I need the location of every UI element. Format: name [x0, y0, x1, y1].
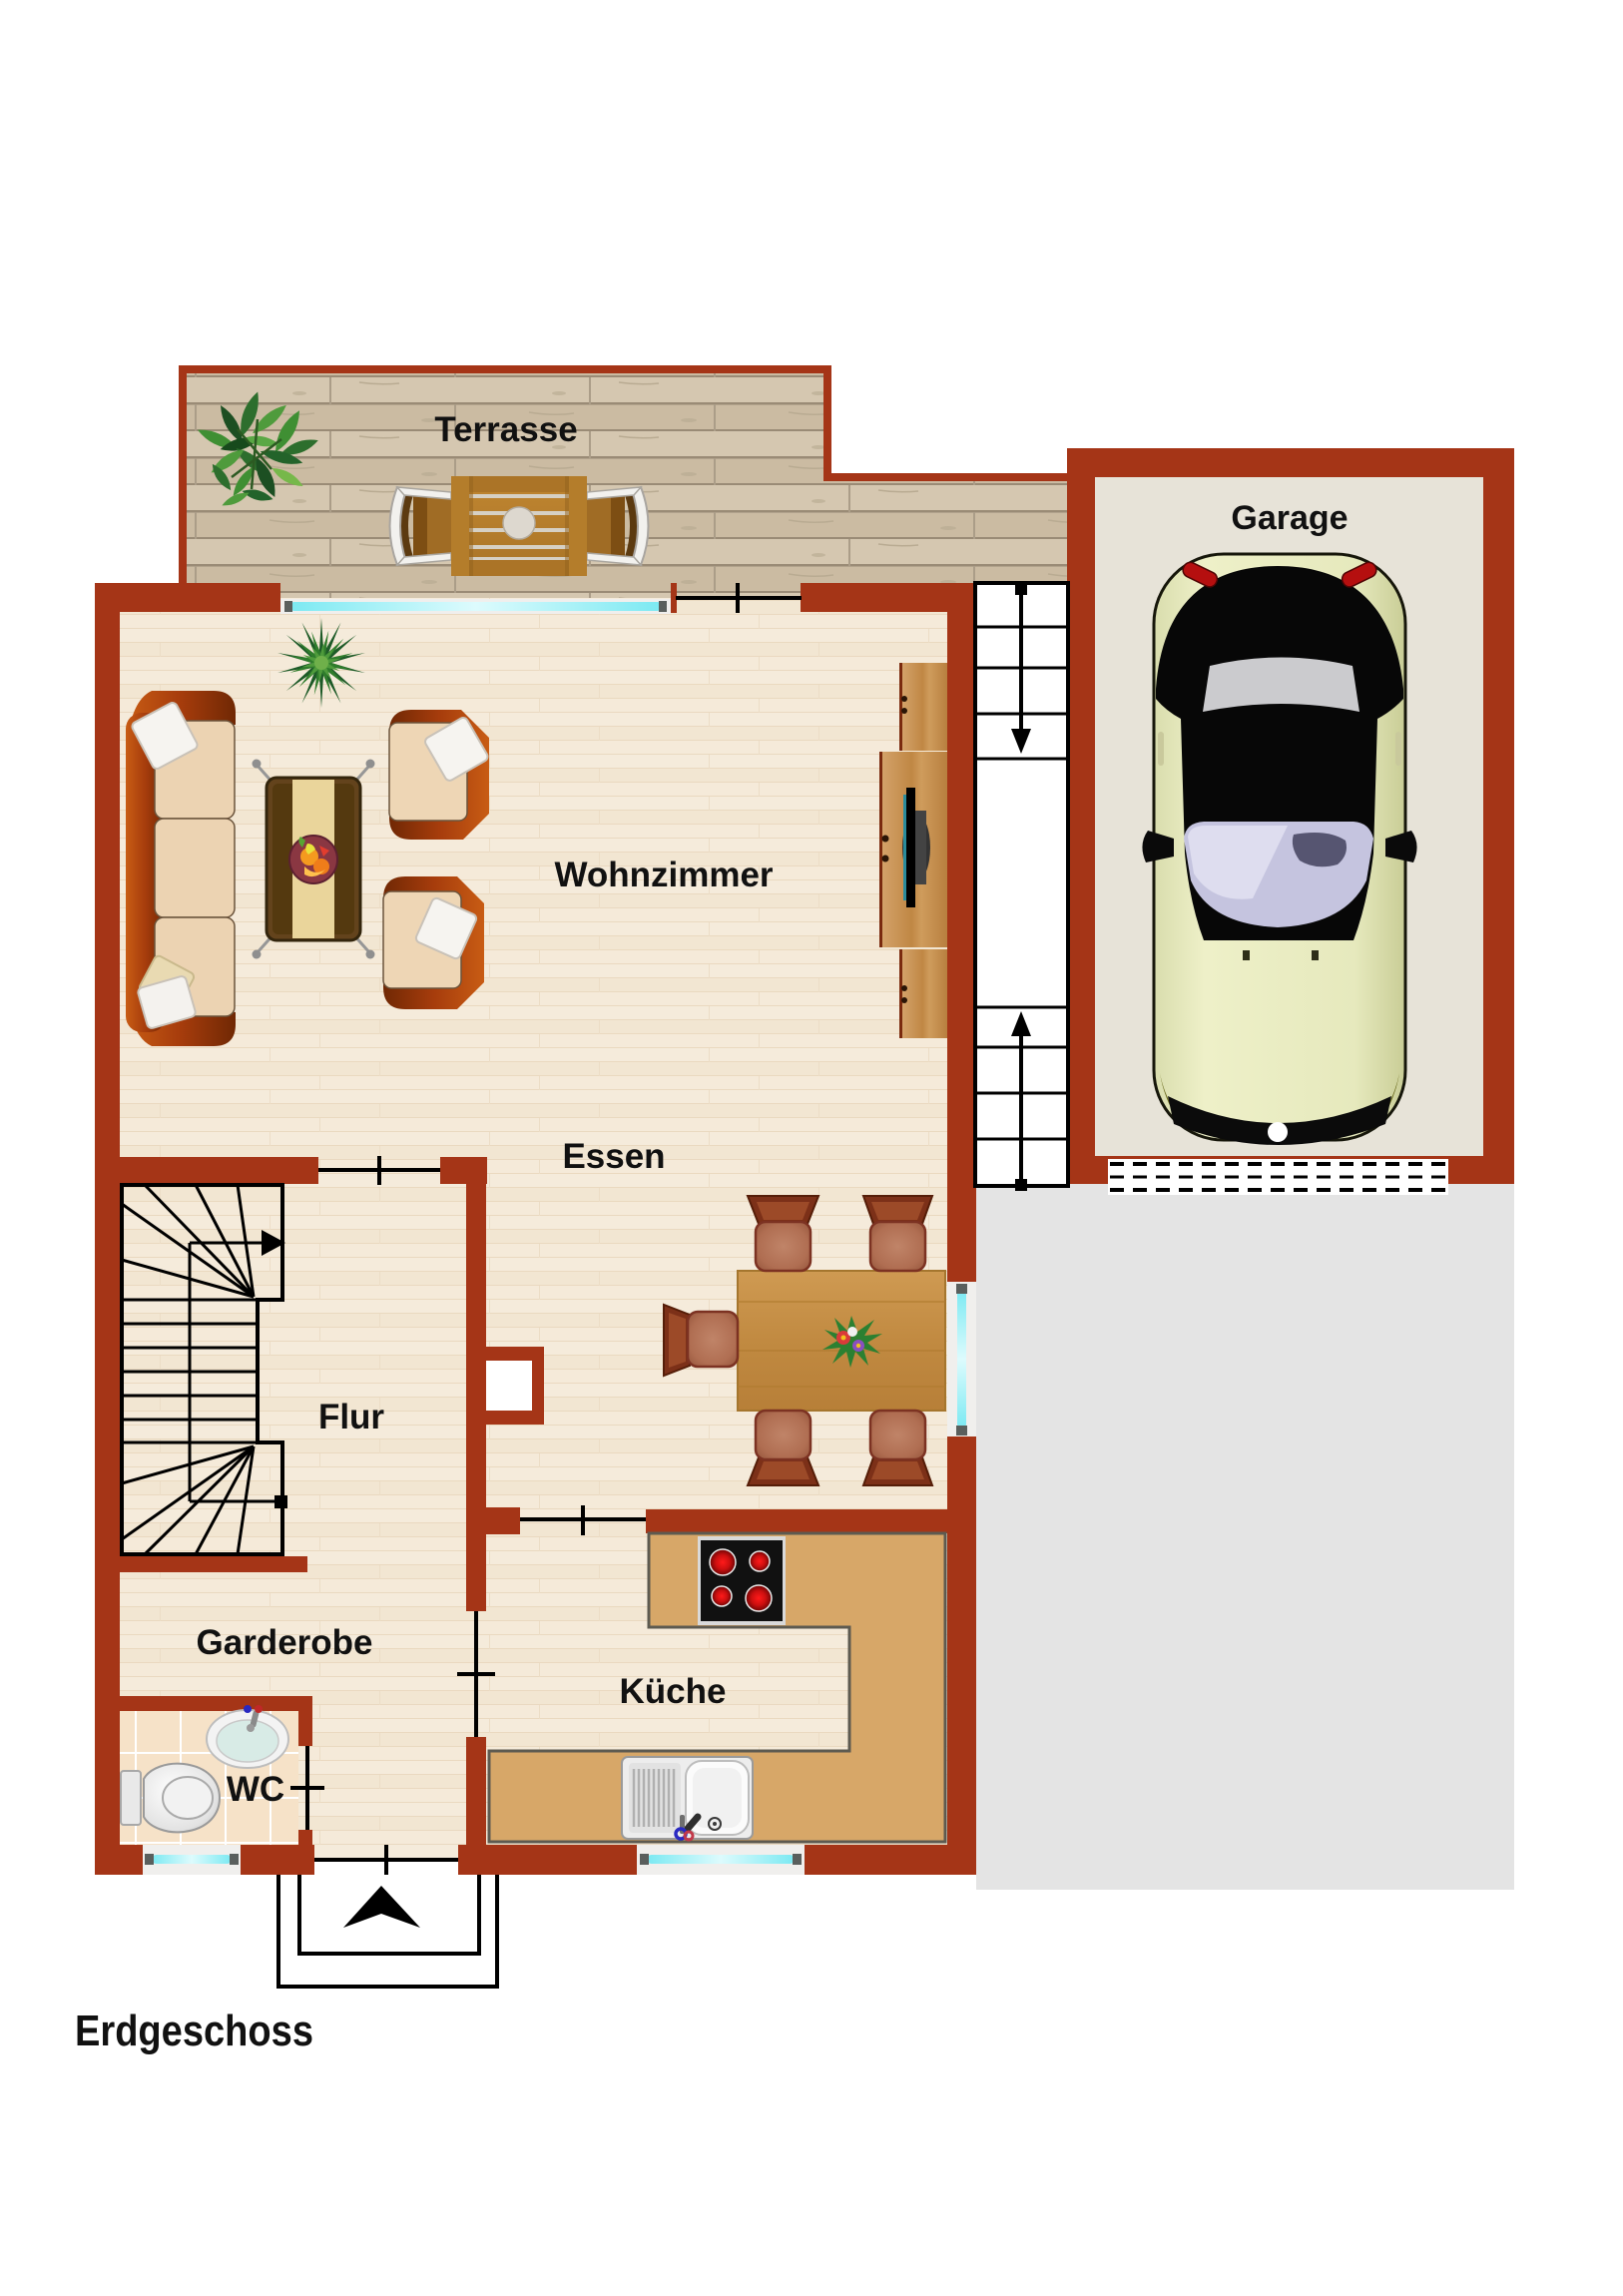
svg-text:Küche: Küche	[620, 1672, 727, 1711]
svg-text:Wohnzimmer: Wohnzimmer	[554, 856, 773, 894]
svg-text:WC: WC	[227, 1770, 284, 1809]
svg-text:Erdgeschoss: Erdgeschoss	[75, 2007, 313, 2055]
svg-text:Garderobe: Garderobe	[197, 1623, 373, 1662]
svg-text:Terrasse: Terrasse	[434, 410, 577, 449]
svg-text:Garage: Garage	[1231, 499, 1348, 537]
svg-text:Flur: Flur	[318, 1398, 384, 1436]
svg-text:Essen: Essen	[562, 1137, 665, 1176]
